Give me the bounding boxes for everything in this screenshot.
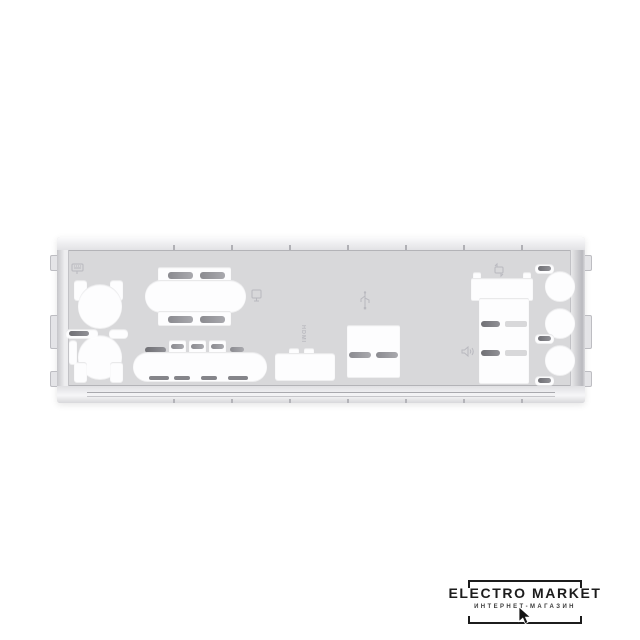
dvi-port [145,280,246,312]
dvi-breakoff-tab [200,272,225,279]
dvi-breakoff-tab [168,272,193,279]
bottom-fold-slot [87,392,555,397]
hdmi-port [275,353,335,380]
vga-bottom-slot [174,376,190,380]
audio-speaker-icon [460,344,475,359]
dvi-breakoff-tab [200,316,225,323]
shield-bottom-fold [57,385,585,403]
usb-divider-slot [481,350,500,356]
shield-left-fold [57,250,69,386]
dvi-breakoff-tab [168,316,193,323]
lan-icon [491,262,507,278]
watermark-logo: ELECTRO MARKET ИНТЕРНЕТ-МАГАЗИН [445,572,605,630]
io-shield: HDMI [57,237,585,403]
latch-slot-right-dark [538,378,551,383]
vga-bottom-slot [201,376,217,380]
ps2-keyboard-port [78,284,122,328]
lan-port [471,278,533,300]
vga-vent-tab-slot [171,344,184,349]
usb-divider-bridge [505,321,527,327]
usb-stack-center-port [347,325,400,377]
shield-top-fold [57,237,585,251]
vga-bottom-slot [149,376,169,380]
usb-icon [358,290,372,312]
vga-bottom-slot [228,376,248,380]
usb-stack-divider-left [349,352,371,358]
audio-jack-1 [545,271,575,301]
latch-slot-left-b [109,329,128,338]
latch-slot-right-dark [538,336,551,341]
usb-divider-bridge [505,350,527,356]
mouse-cursor-icon [517,606,534,625]
fold-notches [117,245,557,250]
hdmi-label: HDMI [300,325,306,347]
product-photo: HDMI [0,0,640,640]
latch-slot-left-a-dark [69,331,89,336]
keyboard-mouse-icon [71,262,85,276]
fold-notches [117,399,557,403]
audio-jack-3 [545,345,575,375]
lan-usb-stack-port [479,298,529,383]
display-icon [250,288,264,304]
vga-vent-tab-slot [191,344,204,349]
usb-divider-slot [481,321,500,327]
ps2-mouse-tab-left [74,362,87,382]
latch-slot-left-vertical [69,340,77,364]
brand-name: ELECTRO MARKET [445,585,605,601]
ps2-mouse-tab-right [110,362,123,382]
usb-stack-divider-right [376,352,398,358]
latch-slot-right-dark [538,266,551,271]
vga-vent-tab-slot [211,344,224,349]
